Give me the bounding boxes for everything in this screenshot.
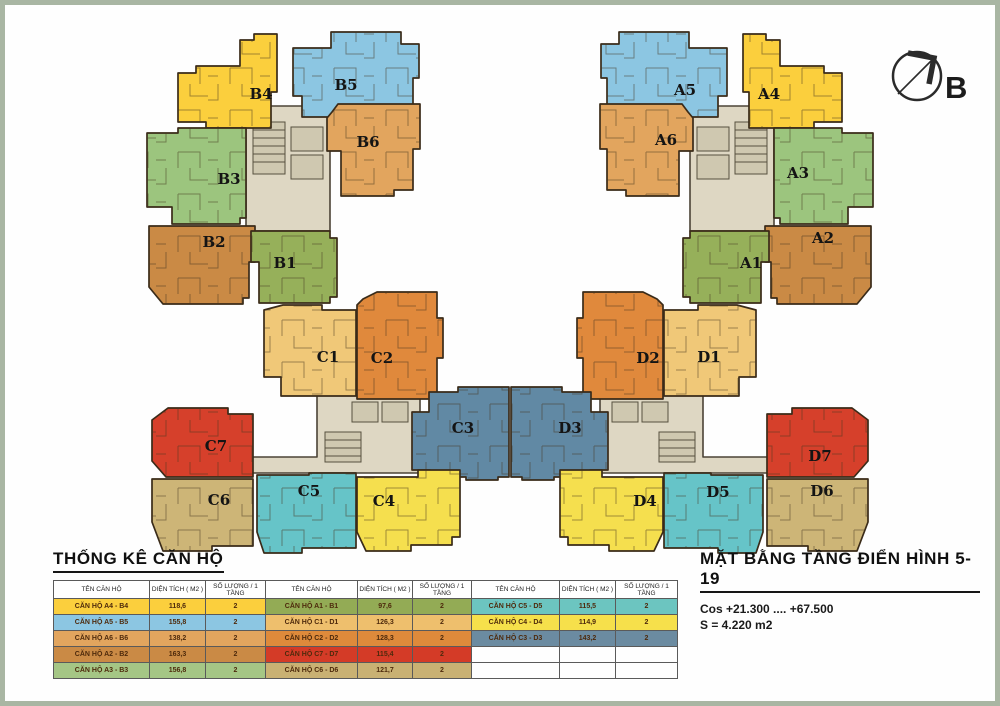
cell-qty: 2 (206, 599, 266, 615)
unit-a6: A6 (600, 104, 693, 196)
cell-name: CĂN HỘ C5 - D5 (472, 599, 560, 615)
unit-label: C1 (317, 348, 339, 366)
cell-empty (560, 663, 616, 679)
unit-label: A3 (786, 164, 809, 182)
unit-a1: A1 (683, 231, 769, 303)
unit-label: D4 (633, 492, 656, 510)
cell-area: 143,2 (560, 631, 616, 647)
unit-label: C7 (205, 437, 227, 455)
unit-d3: D3 (511, 387, 608, 480)
unit-c6: C6 (152, 479, 253, 551)
cell-area: 156,8 (150, 663, 206, 679)
col-header-qty: SỐ LƯỢNG / 1 TẦNG (616, 581, 678, 599)
cell-area: 163,3 (150, 647, 206, 663)
unit-a4: A4 (743, 34, 842, 128)
unit-c4: C4 (357, 470, 460, 551)
unit-label: A5 (673, 81, 696, 99)
unit-label: C5 (298, 482, 320, 500)
unit-label: C6 (208, 491, 230, 509)
unit-d7: D7 (767, 408, 868, 477)
unit-c3: C3 (412, 387, 509, 480)
legend-area-line: S = 4.220 m2 (700, 618, 980, 632)
cell-qty: 2 (206, 663, 266, 679)
cell-name: CĂN HỘ C6 - D6 (266, 663, 358, 679)
cell-name: CĂN HỘ C2 - D2 (266, 631, 358, 647)
cell-area: 128,3 (358, 631, 413, 647)
unit-a2: A2 (765, 226, 871, 304)
unit-b6: B6 (327, 104, 420, 196)
cell-name: CĂN HỘ A4 - B4 (54, 599, 150, 615)
unit-label: C3 (452, 419, 474, 437)
unit-d5: D5 (664, 473, 763, 553)
col-header-area: DIỆN TÍCH ( M2 ) (560, 581, 616, 599)
cell-name: CĂN HỘ A3 - B3 (54, 663, 150, 679)
unit-label: B5 (334, 76, 357, 94)
cell-name: CĂN HỘ C1 - D1 (266, 615, 358, 631)
typical-floor-legend: MẶT BẰNG TẦNG ĐIỂN HÌNH 5-19 Cos +21.300… (700, 549, 980, 634)
col-header-qty: SỐ LƯỢNG / 1 TẦNG (413, 581, 472, 599)
table-row: CĂN HỘ A6 - B6 138,2 2 CĂN HỘ C2 - D2 12… (54, 631, 678, 647)
apartment-statistics: THỐNG KÊ CĂN HỘ TÊN CĂN HỘ DIỆN TÍCH ( M… (53, 549, 678, 679)
north-label: B (945, 70, 967, 105)
cell-qty: 2 (206, 615, 266, 631)
unit-label: A1 (739, 254, 762, 272)
unit-label: D7 (808, 447, 831, 465)
cell-area: 97,6 (358, 599, 413, 615)
cell-area: 138,2 (150, 631, 206, 647)
legend-title: MẶT BẰNG TẦNG ĐIỂN HÌNH 5-19 (700, 549, 980, 593)
cell-name: CĂN HỘ C3 - D3 (472, 631, 560, 647)
unit-b1: B1 (251, 231, 337, 303)
stats-title: THỐNG KÊ CĂN HỘ (53, 549, 224, 573)
cell-qty: 2 (413, 631, 472, 647)
cell-area: 121,7 (358, 663, 413, 679)
unit-d4: D4 (560, 470, 663, 551)
cell-name: CĂN HỘ A1 - B1 (266, 599, 358, 615)
table-header-row: TÊN CĂN HỘ DIỆN TÍCH ( M2 ) SỐ LƯỢNG / 1… (54, 581, 678, 599)
unit-b2: B2 (149, 226, 255, 304)
unit-label: C4 (373, 492, 395, 510)
cell-qty: 2 (616, 599, 678, 615)
cell-qty: 2 (413, 615, 472, 631)
unit-c2: C2 (357, 292, 443, 399)
unit-b3: B3 (147, 128, 246, 224)
cell-qty: 2 (413, 599, 472, 615)
unit-label: D6 (810, 482, 833, 500)
cell-empty (472, 647, 560, 663)
table-row: CĂN HỘ A3 - B3 156,8 2 CĂN HỘ C6 - D6 12… (54, 663, 678, 679)
col-header-area: DIỆN TÍCH ( M2 ) (150, 581, 206, 599)
cell-qty: 2 (616, 631, 678, 647)
table-row: CĂN HỘ A5 - B5 155,8 2 CĂN HỘ C1 - D1 12… (54, 615, 678, 631)
unit-label: B4 (249, 85, 272, 103)
unit-c5: C5 (257, 473, 356, 553)
col-header-name: TÊN CĂN HỘ (472, 581, 560, 599)
cell-name: CĂN HỘ C4 - D4 (472, 615, 560, 631)
cell-name: CĂN HỘ A2 - B2 (54, 647, 150, 663)
unit-label: D3 (558, 419, 581, 437)
c-wing-core (250, 395, 420, 473)
unit-label: A6 (654, 131, 677, 149)
legend-cos-line: Cos +21.300 .... +67.500 (700, 602, 980, 616)
cell-area: 114,9 (560, 615, 616, 631)
cell-area: 155,8 (150, 615, 206, 631)
col-header-qty: SỐ LƯỢNG / 1 TẦNG (206, 581, 266, 599)
cell-area: 115,4 (358, 647, 413, 663)
cell-name: CĂN HỘ A6 - B6 (54, 631, 150, 647)
cell-area: 126,3 (358, 615, 413, 631)
table-row: CĂN HỘ A2 - B2 163,3 2 CĂN HỘ C7 - D7 11… (54, 647, 678, 663)
cell-empty (472, 663, 560, 679)
cell-area: 115,5 (560, 599, 616, 615)
cell-empty (560, 647, 616, 663)
north-arrow-icon: B (893, 52, 967, 105)
unit-label: A2 (811, 229, 834, 247)
unit-label: B6 (356, 133, 379, 151)
unit-label: B3 (217, 170, 240, 188)
cell-qty: 2 (616, 615, 678, 631)
unit-d1: D1 (664, 305, 756, 396)
cell-name: CĂN HỘ C7 - D7 (266, 647, 358, 663)
unit-b4: B4 (178, 34, 277, 128)
unit-c7: C7 (152, 408, 253, 477)
cell-area: 118,6 (150, 599, 206, 615)
unit-label: B2 (202, 233, 225, 251)
col-header-area: DIỆN TÍCH ( M2 ) (358, 581, 413, 599)
unit-label: D5 (706, 483, 729, 501)
cell-qty: 2 (206, 631, 266, 647)
unit-d2: D2 (577, 292, 663, 399)
cell-empty (616, 647, 678, 663)
unit-label: A4 (757, 85, 780, 103)
cell-name: CĂN HỘ A5 - B5 (54, 615, 150, 631)
unit-label: B1 (273, 254, 296, 272)
unit-a3: A3 (774, 128, 873, 224)
cell-qty: 2 (413, 663, 472, 679)
unit-d6: D6 (767, 479, 868, 551)
stats-table: TÊN CĂN HỘ DIỆN TÍCH ( M2 ) SỐ LƯỢNG / 1… (53, 580, 678, 679)
table-row: CĂN HỘ A4 - B4 118,6 2 CĂN HỘ A1 - B1 97… (54, 599, 678, 615)
cell-empty (616, 663, 678, 679)
unit-label: C2 (371, 349, 393, 367)
col-header-name: TÊN CĂN HỘ (266, 581, 358, 599)
unit-label: D1 (697, 348, 720, 366)
unit-c1: C1 (264, 305, 356, 396)
cell-qty: 2 (413, 647, 472, 663)
unit-label: D2 (636, 349, 659, 367)
col-header-name: TÊN CĂN HỘ (54, 581, 150, 599)
d-wing-core (600, 395, 770, 473)
cell-qty: 2 (206, 647, 266, 663)
